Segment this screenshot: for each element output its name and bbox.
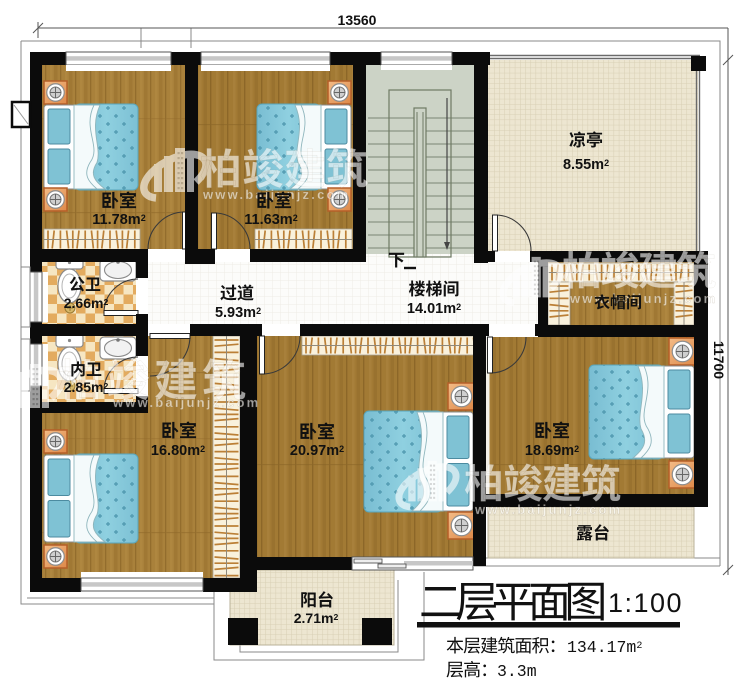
svg-text:134.17m2: 134.17m2 [567, 638, 642, 657]
svg-text:2.71m2: 2.71m2 [294, 610, 339, 626]
svg-text:8.55m2: 8.55m2 [563, 157, 609, 173]
svg-text:11.78m2: 11.78m2 [92, 212, 145, 228]
svg-text:18.69m2: 18.69m2 [525, 443, 579, 459]
svg-text:11.63m2: 11.63m2 [244, 212, 297, 228]
svg-text:www.baijunjz.com: www.baijunjz.com [474, 502, 622, 517]
svg-text:www.baijunjz.com: www.baijunjz.com [112, 395, 260, 410]
svg-text:www.baijunjz.com: www.baijunjz.com [569, 291, 717, 306]
svg-text:20.97m2: 20.97m2 [290, 443, 344, 459]
svg-text:11700: 11700 [711, 341, 727, 379]
svg-text:14.01m2: 14.01m2 [407, 301, 461, 317]
svg-text:13560: 13560 [338, 12, 377, 28]
svg-text:16.80m2: 16.80m2 [151, 443, 205, 459]
svg-text:2.66m2: 2.66m2 [64, 295, 109, 311]
svg-text:5.93m2: 5.93m2 [215, 305, 261, 321]
svg-text:2.85m2: 2.85m2 [64, 379, 109, 395]
svg-text:3.3m: 3.3m [497, 662, 537, 681]
svg-text:1:100: 1:100 [608, 588, 683, 618]
